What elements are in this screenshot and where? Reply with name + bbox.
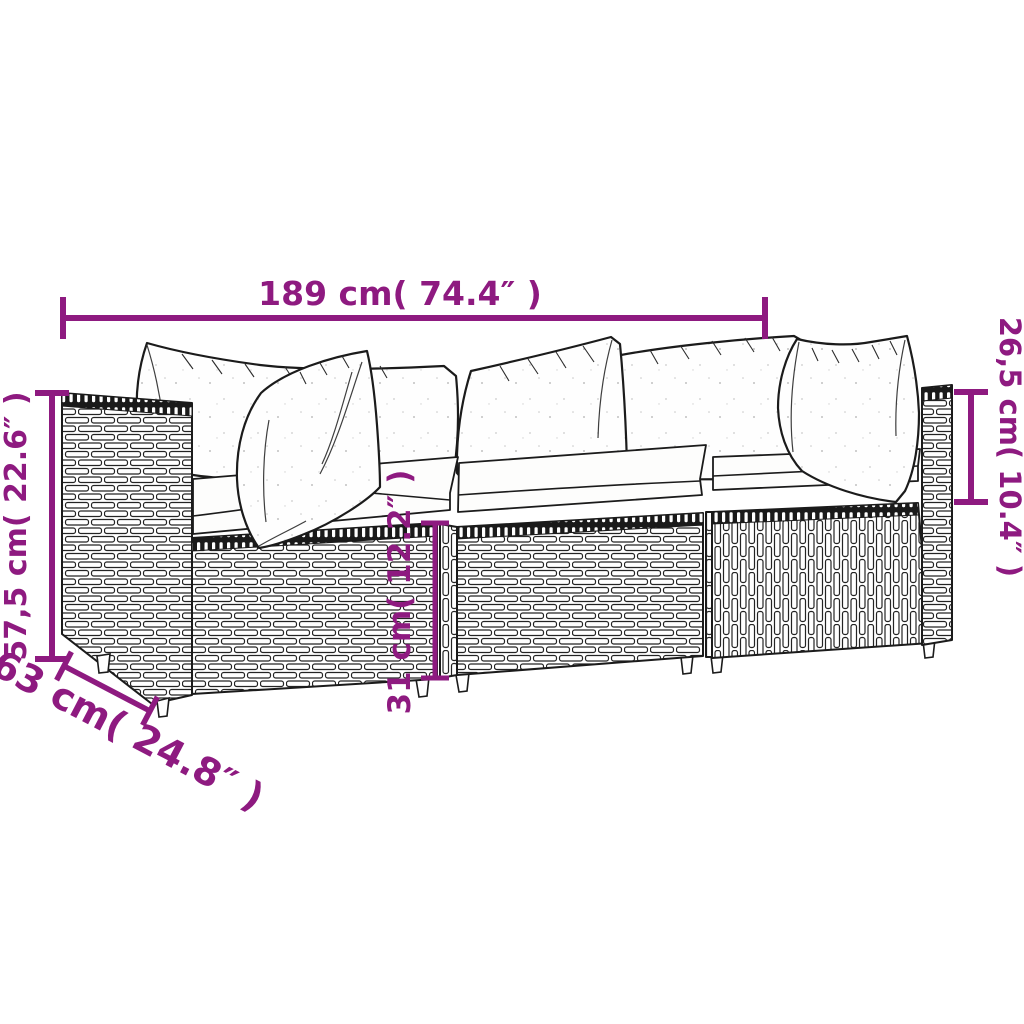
dimension-height: 57,5 cm( 22.6″ )	[0, 391, 69, 660]
dimension-label-height: 57,5 cm( 22.6″ )	[0, 391, 34, 660]
sofa-illustration	[62, 336, 952, 717]
dimension-label-base-height: 31 cm( 12.2″ )	[382, 470, 418, 715]
sofa-dimension-illustration: 189 cm( 74.4″ ) 57,5 cm( 22.6″ ) 26,5 cm…	[0, 0, 1024, 1024]
right-arm-panel	[922, 385, 952, 645]
dimension-label-back-height: 26,5 cm( 10.4″ )	[993, 317, 1024, 577]
right-arm-top-weave	[922, 385, 952, 401]
seat-base-right	[706, 503, 930, 658]
dimension-label-width: 189 cm( 74.4″ )	[258, 274, 542, 313]
dimension-width: 189 cm( 74.4″ )	[63, 274, 765, 339]
dimension-back-height: 26,5 cm( 10.4″ )	[954, 317, 1024, 577]
product-dimension-diagram: 189 cm( 74.4″ ) 57,5 cm( 22.6″ ) 26,5 cm…	[0, 0, 1024, 1024]
left-arm-panel	[62, 393, 192, 704]
seat-base-middle	[440, 513, 703, 678]
